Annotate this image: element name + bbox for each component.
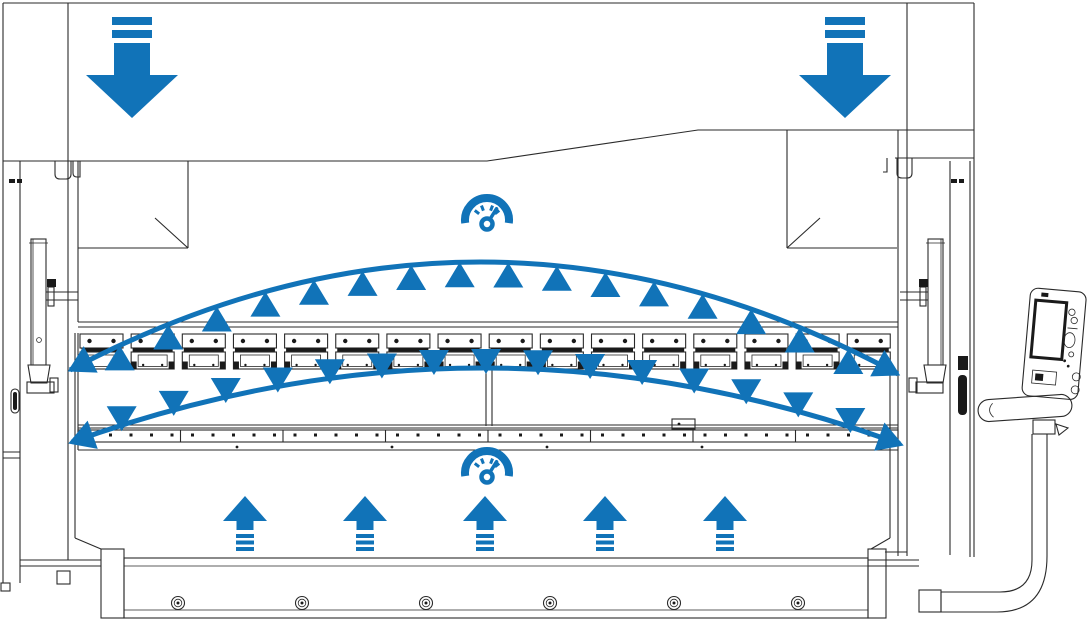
pendant-slot-line	[1068, 328, 1078, 329]
down-arrow-icon	[799, 17, 891, 118]
bolt-hole-icon	[296, 597, 309, 610]
up-arrow-icon	[463, 496, 507, 551]
table-dot	[458, 434, 461, 437]
table-under-dot	[236, 446, 239, 449]
bolt-hole-icon	[792, 597, 805, 610]
frame-bracket-left	[57, 571, 70, 584]
upper-beam-ram	[75, 130, 898, 556]
table-dot	[232, 434, 235, 437]
clamp-unit	[745, 334, 788, 369]
up-triangle-icon	[445, 262, 475, 287]
handlebar-inner	[989, 403, 993, 417]
table-dot	[355, 434, 358, 437]
table-bolt-dots	[89, 434, 892, 449]
control-pendant	[941, 288, 1088, 612]
table-dot	[663, 434, 666, 437]
table-dot	[376, 434, 379, 437]
pendant-knob-3	[1069, 352, 1074, 357]
up-arrow-icon	[223, 496, 267, 551]
down-arrow-icon	[86, 17, 178, 118]
up-arrow-icon	[583, 496, 627, 551]
down-force-arrows	[86, 17, 891, 118]
pendant-knob-1	[1068, 309, 1075, 316]
pendant-top-mark	[1041, 293, 1048, 298]
pendant-mount-wing	[1056, 424, 1068, 435]
frame-slot-left-fill	[13, 392, 17, 410]
table-dot	[109, 434, 112, 437]
table-dot	[335, 434, 338, 437]
table-gauge-block-dot	[678, 423, 681, 426]
ruler-knob-left	[47, 279, 56, 287]
ram-outline	[75, 130, 898, 556]
table-dot	[847, 434, 850, 437]
ruler-crossarm-right	[900, 292, 928, 300]
up-arrow-icon	[703, 496, 747, 551]
pendant-knob-2	[1071, 317, 1078, 324]
up-arrow-icon	[343, 496, 387, 551]
ruler-bracket-right	[924, 365, 946, 383]
table-dot	[581, 434, 584, 437]
table-dot	[745, 434, 748, 437]
clamp-unit	[233, 334, 276, 369]
table-dot	[437, 434, 440, 437]
press-brake-diagram	[0, 0, 1090, 622]
cable-connector-box	[919, 590, 941, 612]
bolt-hole-icon	[420, 597, 433, 610]
table-dot	[560, 434, 563, 437]
table-segment-dividers	[181, 430, 796, 442]
table-dot	[294, 434, 297, 437]
table-dot	[724, 434, 727, 437]
table-dot	[212, 434, 215, 437]
table-dot	[417, 434, 420, 437]
up-triangle-icon	[542, 266, 572, 291]
pendant-mount	[1033, 420, 1055, 434]
table-dot	[540, 434, 543, 437]
table-dot	[786, 434, 789, 437]
pendant-button	[1035, 373, 1044, 381]
frame-label-left	[9, 179, 15, 183]
table-dot	[171, 434, 174, 437]
clamp-unit	[694, 334, 737, 369]
table-dot	[683, 434, 686, 437]
ruler-plate-left	[48, 287, 54, 306]
wall-mount-box	[958, 356, 968, 370]
pendant-screen	[1031, 300, 1067, 359]
ruler-bracket-left	[28, 365, 50, 383]
table-under-dot	[391, 446, 394, 449]
base-pillar-right	[868, 549, 886, 618]
right-side-ruler	[900, 239, 967, 415]
table-dot	[704, 434, 707, 437]
ruler-plate-right	[920, 287, 926, 306]
ruler-crossarm-left	[46, 292, 78, 300]
table-dot	[150, 434, 153, 437]
table-dot	[191, 434, 194, 437]
pendant-dot-1	[1063, 359, 1066, 362]
ruler-lines-left	[29, 239, 48, 365]
pendant-arm-tube	[941, 434, 1047, 612]
table-dot	[806, 434, 809, 437]
table-dot	[642, 434, 645, 437]
table-dot	[478, 434, 481, 437]
frame-label-left2	[17, 179, 22, 183]
table-dot	[314, 434, 317, 437]
diagram-canvas	[0, 0, 1090, 622]
table-under-dot	[546, 446, 549, 449]
ruler-lines-right	[926, 239, 945, 365]
frame-label-right2	[959, 179, 964, 183]
pendant-dot-2	[1067, 365, 1070, 368]
clamp-unit	[182, 334, 225, 369]
speedometer-icon	[465, 451, 509, 483]
frame-slot-right	[958, 375, 967, 415]
speedometer-icon	[465, 198, 509, 230]
up-triangle-icon	[493, 262, 523, 287]
base-inner-lines	[124, 566, 868, 610]
frame-foot-left	[1, 583, 10, 591]
table-dot	[601, 434, 604, 437]
table-dot	[130, 434, 133, 437]
table-dot	[499, 434, 502, 437]
pendant-console	[1021, 288, 1087, 401]
frame-label-right	[951, 179, 957, 183]
table-dot	[253, 434, 256, 437]
ruler-knob-right	[919, 279, 928, 287]
clamp-unit	[336, 334, 379, 369]
table-under-dot	[701, 446, 704, 449]
base-body	[124, 558, 868, 618]
table-rails	[75, 425, 898, 549]
bolt-hole-icon	[668, 597, 681, 610]
ruler-foot-right	[916, 382, 943, 393]
base	[101, 549, 941, 618]
ruler-mark-left	[37, 338, 42, 343]
bolt-hole-icon	[172, 597, 185, 610]
table-dot	[765, 434, 768, 437]
table-dot	[273, 434, 276, 437]
table-dot	[827, 434, 830, 437]
up-triangle-icon	[396, 265, 426, 290]
base-bolt-holes	[172, 597, 805, 610]
table-dot	[622, 434, 625, 437]
up-force-arrows	[223, 496, 747, 551]
table-dot	[519, 434, 522, 437]
base-pillar-left	[101, 549, 124, 618]
bolt-hole-icon	[544, 597, 557, 610]
table-dot	[396, 434, 399, 437]
